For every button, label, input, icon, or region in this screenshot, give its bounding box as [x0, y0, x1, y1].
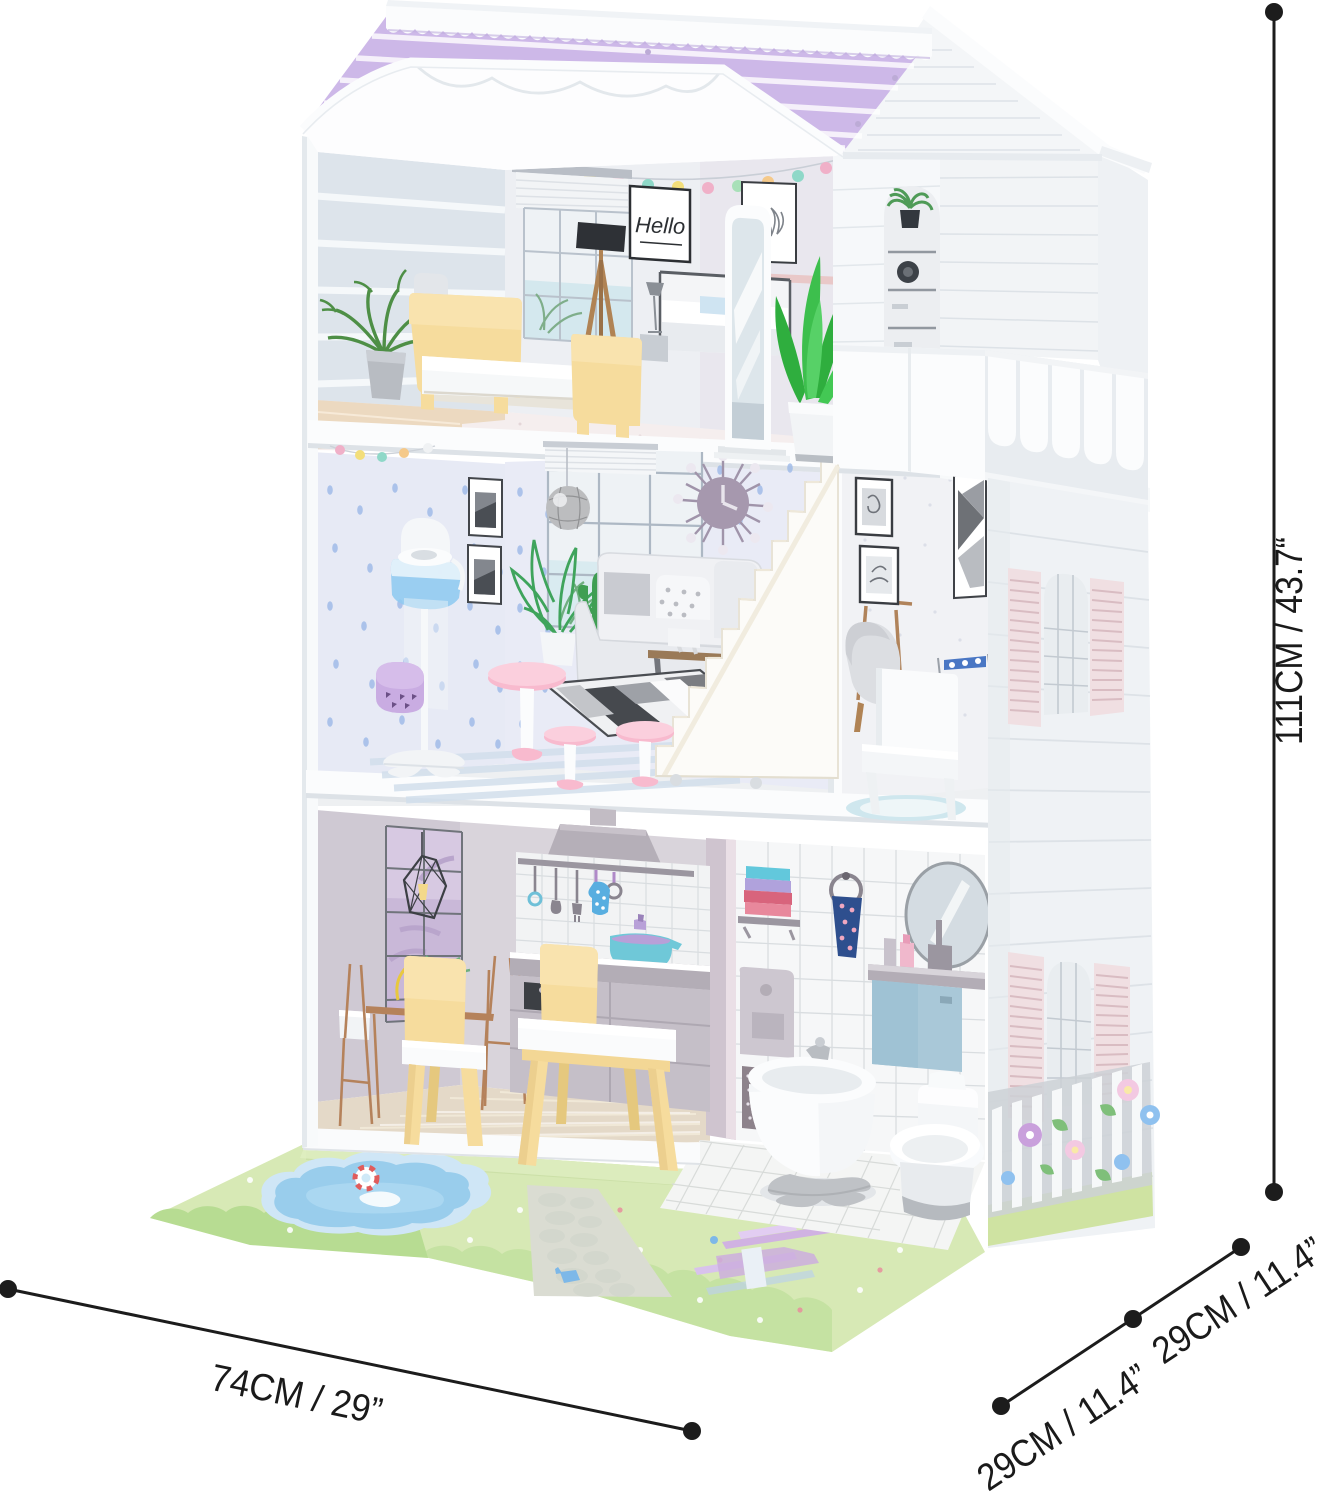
svg-text:111CM / 43.7“: 111CM / 43.7“ — [1269, 537, 1311, 745]
svg-text:Hello: Hello — [635, 212, 686, 239]
